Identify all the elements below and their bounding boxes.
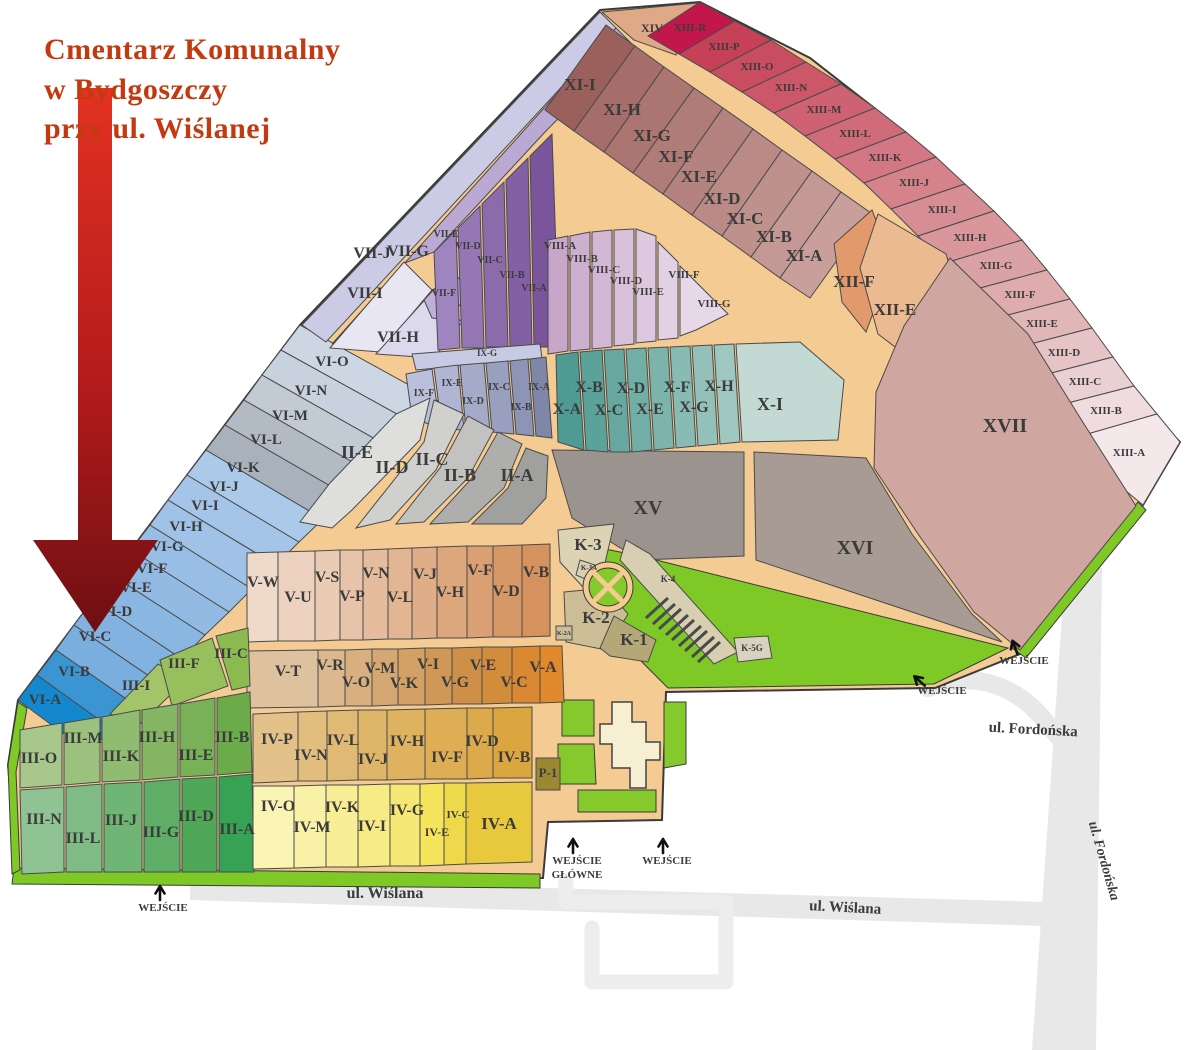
section-label-K-3: K-3 [574, 535, 601, 554]
section-label-V-D: V-D [492, 583, 519, 600]
section-VIII-C [592, 230, 612, 349]
section-label-III-I: III-I [122, 678, 151, 694]
section-label-VII-C: VII-C [477, 255, 503, 266]
section-label-III-N: III-N [26, 811, 62, 828]
section-label-III-L: III-L [66, 830, 101, 847]
section-label-VII-H: VII-H [377, 329, 419, 346]
entrance-arrow-south [659, 839, 668, 853]
section-label-IV-A: IV-A [481, 814, 517, 833]
section-label-III-A: III-A [219, 821, 255, 838]
section-IV-N [298, 711, 327, 781]
section-IV-G [390, 784, 420, 866]
section-VIII-D [614, 229, 634, 346]
section-V-N [363, 549, 388, 640]
section-label-V-J: V-J [413, 566, 437, 583]
section-label-K-5G: K-5G [741, 643, 763, 653]
section-label-IX-E: IX-E [441, 378, 462, 389]
section-label-VI-M: VI-M [272, 408, 308, 424]
green-patch-3 [664, 702, 686, 768]
section-label-III-J: III-J [105, 812, 137, 829]
map-title: Cmentarz Komunalny w Bydgoszczy przy ul.… [44, 30, 341, 149]
section-label-VIII-A: VIII-A [544, 240, 576, 252]
section-label-VII-G: VII-G [387, 243, 429, 260]
section-label-VII-B: VII-B [499, 270, 524, 281]
title-line-1: Cmentarz Komunalny [44, 30, 341, 70]
section-label-VII-I: VII-I [347, 285, 383, 302]
section-label-P-1: P-1 [539, 765, 558, 780]
section-label-X-B: X-B [575, 379, 603, 396]
section-VII-B [506, 158, 532, 347]
section-label-XIII-I: XIII-I [928, 204, 957, 216]
section-label-XIII-A: XIII-A [1113, 447, 1145, 459]
section-label-VI-H: VI-H [169, 519, 203, 535]
street-ul-fordonska-horizontal: ul. Fordońska [988, 720, 1078, 741]
section-label-IX-B: IX-B [510, 402, 531, 413]
section-label-K-3A: K-3A [581, 564, 597, 572]
section-label-XVII: XVII [983, 415, 1028, 437]
section-label-VII-D: VII-D [455, 241, 481, 252]
section-IV-K [326, 785, 358, 867]
section-IV-B [493, 707, 532, 778]
entrance-label-southwest: WEJŚCIE [138, 902, 188, 914]
section-label-VI-L: VI-L [250, 432, 282, 448]
section-label-XI-H: XI-H [603, 100, 641, 119]
section-label-III-D: III-D [178, 808, 214, 825]
entrance-label-main-1: WEJŚCIE [552, 855, 602, 867]
section-IV-J [358, 710, 387, 780]
section-label-V-H: V-H [436, 584, 465, 601]
section-label-XIV: XIV [641, 21, 663, 35]
section-label-XIII-L: XIII-L [839, 128, 871, 140]
section-label-IV-P: IV-P [261, 731, 293, 748]
cemetery-map: VI-AVI-BVI-CVI-DVI-EVI-FVI-GVI-HVI-IVI-J… [0, 0, 1202, 1050]
section-label-V-E: V-E [470, 657, 496, 674]
section-label-V-G: V-G [441, 674, 470, 691]
section-label-II-A: II-A [500, 465, 533, 485]
section-label-XI-D: XI-D [704, 189, 741, 208]
section-label-VIII-G: VIII-G [697, 298, 730, 310]
section-label-III-G: III-G [143, 824, 180, 841]
section-label-V-B: V-B [523, 564, 550, 581]
section-label-V-N: V-N [362, 565, 390, 582]
section-label-IX-D: IX-D [462, 396, 484, 407]
entrance-label-northeast: WEJŚCIE [999, 655, 1049, 667]
entrance-label-south: WEJŚCIE [642, 855, 692, 867]
section-IV-F [425, 708, 467, 779]
section-label-V-R: V-R [316, 657, 344, 674]
section-label-III-C: III-C [214, 646, 247, 662]
section-label-V-F: V-F [467, 562, 493, 579]
section-label-VI-O: VI-O [315, 354, 348, 370]
section-label-III-O: III-O [21, 750, 57, 767]
section-label-II-E: II-E [341, 442, 373, 462]
section-III-M [64, 717, 100, 785]
section-label-K-4: K-4 [661, 574, 676, 584]
section-V-J [412, 547, 437, 639]
section-label-VI-K: VI-K [226, 460, 260, 476]
section-label-VI-J: VI-J [209, 479, 239, 495]
section-label-X-F: X-F [664, 379, 691, 396]
title-line-2: w Bydgoszczy [44, 70, 341, 110]
section-label-III-B: III-B [215, 729, 250, 746]
section-label-X-C: X-C [595, 402, 623, 419]
section-label-V-K: V-K [390, 675, 419, 692]
section-label-X-I: X-I [757, 394, 783, 414]
section-label-VII-E: VII-E [433, 229, 458, 240]
section-label-III-F: III-F [168, 656, 200, 672]
section-VII-D [458, 206, 484, 348]
section-label-VIII-E: VIII-E [632, 286, 664, 298]
section-label-IX-F: IX-F [414, 388, 435, 399]
section-label-X-G: X-G [679, 399, 709, 416]
section-label-XII-E: XII-E [874, 300, 917, 319]
section-VIII-A [548, 236, 568, 354]
section-label-XIII-O: XIII-O [740, 61, 773, 73]
section-label-V-A: V-A [529, 659, 557, 676]
section-label-IV-D: IV-D [465, 733, 498, 750]
section-label-XI-C: XI-C [727, 209, 764, 228]
entrance-arrow-southwest [156, 886, 165, 900]
section-label-IV-B: IV-B [498, 749, 531, 766]
section-label-XI-F: XI-F [659, 147, 694, 166]
section-III-K [102, 710, 140, 782]
section-label-III-H: III-H [139, 729, 176, 746]
section-label-XIII-N: XIII-N [775, 82, 807, 94]
green-patch-4 [578, 790, 656, 812]
section-label-VIII-F: VIII-F [668, 269, 699, 281]
section-label-XIII-R: XIII-R [674, 22, 707, 34]
section-V-W [247, 552, 278, 642]
section-label-III-K: III-K [103, 748, 140, 765]
section-label-XIII-M: XIII-M [807, 104, 842, 116]
section-label-VII-A: VII-A [521, 283, 547, 294]
section-label-V-W: V-W [247, 574, 279, 591]
section-label-IV-I: IV-I [358, 818, 386, 835]
section-III-L [66, 784, 102, 872]
section-label-V-C: V-C [500, 674, 527, 691]
section-V-S [315, 550, 340, 641]
section-label-XIII-E: XIII-E [1026, 318, 1058, 330]
section-label-XVI: XVI [837, 537, 874, 559]
section-label-XIII-P: XIII-P [708, 41, 739, 53]
section-label-II-D: II-D [375, 457, 408, 477]
section-label-XII-F: XII-F [833, 272, 875, 291]
section-label-II-B: II-B [444, 465, 476, 485]
section-label-X-A: X-A [553, 401, 582, 418]
section-label-IV-H: IV-H [390, 733, 425, 750]
section-label-IX-G: IX-G [477, 348, 497, 358]
section-label-V-U: V-U [284, 589, 312, 606]
section-label-III-E: III-E [179, 747, 214, 764]
section-label-IV-J: IV-J [358, 751, 388, 768]
section-IV-C [444, 783, 466, 865]
section-label-XIII-F: XIII-F [1004, 289, 1035, 301]
section-label-XIII-C: XIII-C [1069, 376, 1101, 388]
section-label-XI-G: XI-G [633, 126, 671, 145]
highlight-arrow [33, 88, 158, 632]
section-label-VI-B: VI-B [58, 664, 90, 680]
section-label-IV-N: IV-N [294, 747, 328, 764]
section-label-V-P: V-P [339, 588, 365, 605]
section-label-XIII-K: XIII-K [868, 152, 901, 164]
green-patch-2 [558, 744, 596, 784]
green-patch-1 [562, 700, 594, 736]
section-label-XIII-B: XIII-B [1090, 405, 1122, 417]
section-label-XI-E: XI-E [681, 167, 717, 186]
section-label-X-H: X-H [704, 378, 734, 395]
section-label-K-1: K-1 [620, 630, 647, 649]
section-label-XIII-J: XIII-J [899, 177, 929, 189]
section-label-IX-C: IX-C [488, 382, 510, 393]
section-label-X-E: X-E [636, 401, 664, 418]
section-label-IV-E: IV-E [425, 825, 449, 839]
section-label-XV: XV [634, 497, 663, 519]
section-label-IV-M: IV-M [293, 819, 330, 836]
section-label-IV-L: IV-L [327, 732, 360, 749]
section-label-III-M: III-M [63, 730, 102, 747]
section-label-VII-F: VII-F [432, 288, 456, 299]
section-label-V-T: V-T [275, 663, 302, 680]
section-label-V-S: V-S [315, 569, 340, 586]
section-label-K-2: K-2 [582, 608, 609, 627]
entrance-arrow-main [569, 839, 578, 853]
road-loop [566, 882, 726, 982]
section-label-V-I: V-I [417, 656, 439, 673]
title-line-3: przy ul. Wiślanej [44, 109, 341, 149]
section-label-IV-G: IV-G [390, 802, 425, 819]
section-III-E [180, 698, 215, 777]
section-label-XI-B: XI-B [756, 227, 792, 246]
section-label-XI-A: XI-A [786, 246, 824, 265]
section-label-IX-A: IX-A [528, 382, 550, 393]
section-label-IV-C: IV-C [446, 809, 469, 821]
street-ul-wislana-left: ul. Wiślana [347, 885, 424, 902]
section-label-IV-K: IV-K [325, 799, 360, 816]
section-label-XIII-H: XIII-H [953, 232, 986, 244]
section-label-VI-I: VI-I [191, 498, 219, 514]
section-label-VII-J: VII-J [353, 245, 390, 262]
section-label-K-2A: K-2A [557, 631, 572, 637]
section-label-X-D: X-D [617, 380, 645, 397]
map-canvas: VI-AVI-BVI-CVI-DVI-EVI-FVI-GVI-HVI-IVI-J… [0, 0, 1202, 1050]
section-V-B [522, 544, 550, 637]
section-label-XI-I: XI-I [564, 75, 596, 94]
section-V-F [467, 546, 493, 638]
section-label-VI-N: VI-N [295, 383, 328, 399]
section-label-IV-F: IV-F [431, 749, 463, 766]
entrance-label-main-2: GŁÓWNE [552, 869, 603, 881]
section-label-VI-A: VI-A [29, 692, 62, 708]
section-label-IV-O: IV-O [261, 798, 295, 815]
section-III-N [20, 787, 64, 874]
section-label-XIII-D: XIII-D [1048, 347, 1080, 359]
section-label-V-L: V-L [387, 589, 413, 606]
section-label-XIII-G: XIII-G [979, 260, 1012, 272]
